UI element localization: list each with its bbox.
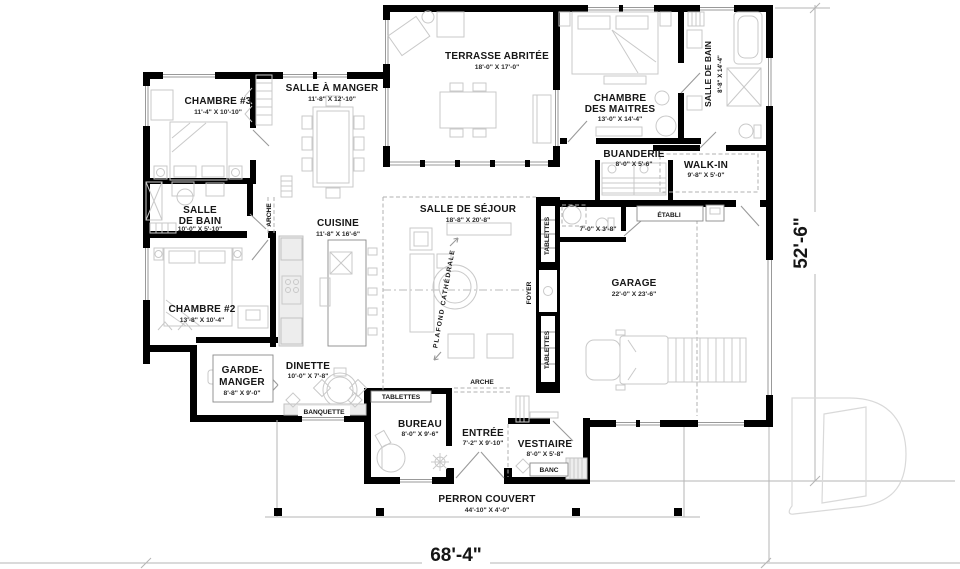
walls	[143, 5, 773, 484]
room-label-bain2: SALLE DE BAIN 10'-0" X 5'-10"	[178, 205, 222, 233]
window-right-bain	[766, 58, 773, 106]
room-dims: 11'-8" X 12'-10"	[308, 96, 356, 103]
room-name: DINETTE	[286, 361, 330, 372]
window-terrasse-left-1	[383, 20, 390, 64]
room-name: BUREAU	[398, 419, 442, 430]
window-bureau	[400, 477, 432, 484]
room-dims: 11'-4" X 10'-10"	[194, 109, 242, 116]
label-banquette-group: BANQUETTE	[298, 406, 350, 416]
room-name: SALLE À MANGER	[286, 81, 379, 94]
window-top-salle-a-manger	[283, 72, 347, 79]
room-name: VESTIAIRE	[518, 439, 573, 450]
room-name: PERRON COUVERT	[438, 494, 535, 505]
room-dims: 8'-0" X 9'-6"	[401, 431, 438, 438]
label-tablettes-bureau: TABLETTES	[382, 394, 421, 401]
room-name: TERRASSE ABRITÉE	[445, 49, 549, 62]
room-label-entree: ENTRÉE 7'-2" X 9'-10"	[462, 426, 504, 447]
window-top-bain	[700, 5, 734, 12]
window-left-chambre2	[143, 248, 150, 300]
window-garage-2	[698, 420, 744, 427]
room-dims: 8'-8" X 14'-4"	[717, 55, 724, 93]
dining-table-symbol	[302, 96, 364, 198]
window-terrasse-left-2	[383, 88, 390, 146]
room-name: CHAMBRE #3	[184, 96, 251, 107]
room-dims: 22'-0" X 23'-6"	[612, 291, 656, 298]
watermark-d-logo	[789, 398, 906, 514]
room-dims: 7'-2" X 9'-10"	[463, 440, 504, 447]
room-dims: 13'-0" X 14'-4"	[598, 116, 642, 123]
room-dims: 8'-8" X 9'-0"	[223, 390, 260, 397]
room-name: SALLE DE BAIN	[703, 41, 713, 107]
room-name-line1: CHAMBRE	[594, 93, 647, 104]
room-dims: 44'-10" X 4'-0"	[465, 507, 509, 514]
label-banquette: BANQUETTE	[303, 409, 345, 416]
room-name-line1: GARDE-	[222, 365, 263, 376]
kitchen-symbols	[279, 176, 377, 346]
room-name: CHAMBRE #2	[168, 304, 235, 315]
room-name-line2: DES MAITRES	[585, 104, 656, 115]
window-dinette	[302, 415, 344, 422]
label-plafond-cathedrale: PLAFOND CATHÉDRALE	[430, 238, 458, 360]
room-label-bain-maitres: SALLE DE BAIN 8'-8" X 14'-4"	[703, 41, 724, 107]
room-name: WALK-IN	[684, 160, 728, 171]
room-name: BUANDERIE	[603, 149, 664, 160]
label-tablettes-bas: TABLETTES	[544, 330, 551, 369]
room-dims: 10'-0" X 5'-10"	[178, 226, 222, 233]
room-dims: 8'-0" X 5'-8"	[526, 451, 563, 458]
room-label-walkin: WALK-IN 9'-8" X 5'-0"	[684, 160, 728, 179]
room-name-line2: MANGER	[219, 377, 265, 388]
room-label-sejour: SALLE DE SÉJOUR 18'-8" X 20'-8"	[420, 202, 517, 224]
room-name: ENTRÉE	[462, 426, 504, 439]
room-label-dinette: DINETTE 10'-0" X 7'-8"	[286, 361, 330, 380]
room-label-garage: GARAGE 22'-0" X 23'-6"	[611, 278, 656, 298]
room-label-maitres: CHAMBRE DES MAITRES 13'-0" X 14'-4"	[585, 93, 656, 123]
room-label-garde-manger: GARDE- MANGER 8'-8" X 9'-0"	[213, 355, 273, 402]
label-tablettes-bureau-box: TABLETTES	[371, 391, 431, 402]
room-name-line1: SALLE	[183, 205, 217, 216]
room-name: SALLE DE SÉJOUR	[420, 202, 517, 215]
room-name: CUISINE	[317, 218, 359, 229]
label-arche-sejour: ARCHE	[470, 379, 494, 386]
garage-door	[768, 260, 772, 395]
room-label-salle-a-manger: SALLE À MANGER 11'-8" X 12'-10"	[286, 81, 379, 103]
label-banc-box: BANC	[530, 463, 568, 476]
room-label-chambre3: CHAMBRE #3 11'-4" X 10'-10"	[184, 96, 251, 116]
overall-depth-dimension: 52'-6"	[791, 217, 812, 269]
window-terrasse-right	[553, 90, 560, 146]
label-tablettes-haut: TABLETTES	[544, 216, 551, 255]
furniture	[146, 11, 762, 479]
label-banc: BANC	[539, 467, 558, 474]
overall-width-dimension: 68'-4"	[430, 545, 482, 566]
label-foyer: FOYER	[526, 281, 533, 304]
label-etabli: ÉTABLI	[657, 210, 680, 219]
room-dims-salle-eau: 7'-0" X 3'-8"	[579, 226, 616, 233]
label-arche-hall: ARCHE	[266, 203, 273, 227]
floor-plan-svg: 68'-4" 52'-6" CHAMBRE #3 11'-4" X 10'-10…	[0, 0, 960, 569]
room-label-bureau: BUREAU 8'-0" X 9'-6"	[398, 419, 442, 438]
room-label-terrasse: TERRASSE ABRITÉE 18'-0" X 17'-0"	[445, 49, 549, 71]
room-dims: 8'-0" X 5'-6"	[615, 161, 652, 168]
truck-symbol	[586, 330, 746, 390]
window-garage-1	[616, 420, 660, 427]
room-dims: 13'-8" X 10'-4"	[180, 317, 224, 324]
window-top-chambre3	[163, 72, 215, 79]
window-left-chambre3	[143, 86, 150, 126]
room-dims: 18'-8" X 20'-8"	[446, 217, 490, 224]
room-dims: 9'-8" X 5'-0"	[687, 172, 724, 179]
patio-furniture-symbol	[388, 11, 551, 143]
room-label-cuisine: CUISINE 11'-8" X 16'-6"	[316, 218, 360, 238]
floor-plan-page: 68'-4" 52'-6" CHAMBRE #3 11'-4" X 10'-10…	[0, 0, 960, 569]
room-label-vestiaire: VESTIAIRE 8'-0" X 5'-8"	[518, 439, 573, 458]
room-dims: 10'-0" X 7'-8"	[288, 373, 329, 380]
room-name: GARAGE	[611, 278, 656, 289]
room-label-perron: PERRON COUVERT 44'-10" X 4'-0"	[438, 494, 535, 514]
window-top-maitres	[588, 5, 654, 12]
room-dims: 18'-0" X 17'-0"	[475, 64, 519, 71]
room-dims: 11'-8" X 16'-6"	[316, 231, 360, 238]
terrasse-screen-wall	[383, 160, 555, 167]
